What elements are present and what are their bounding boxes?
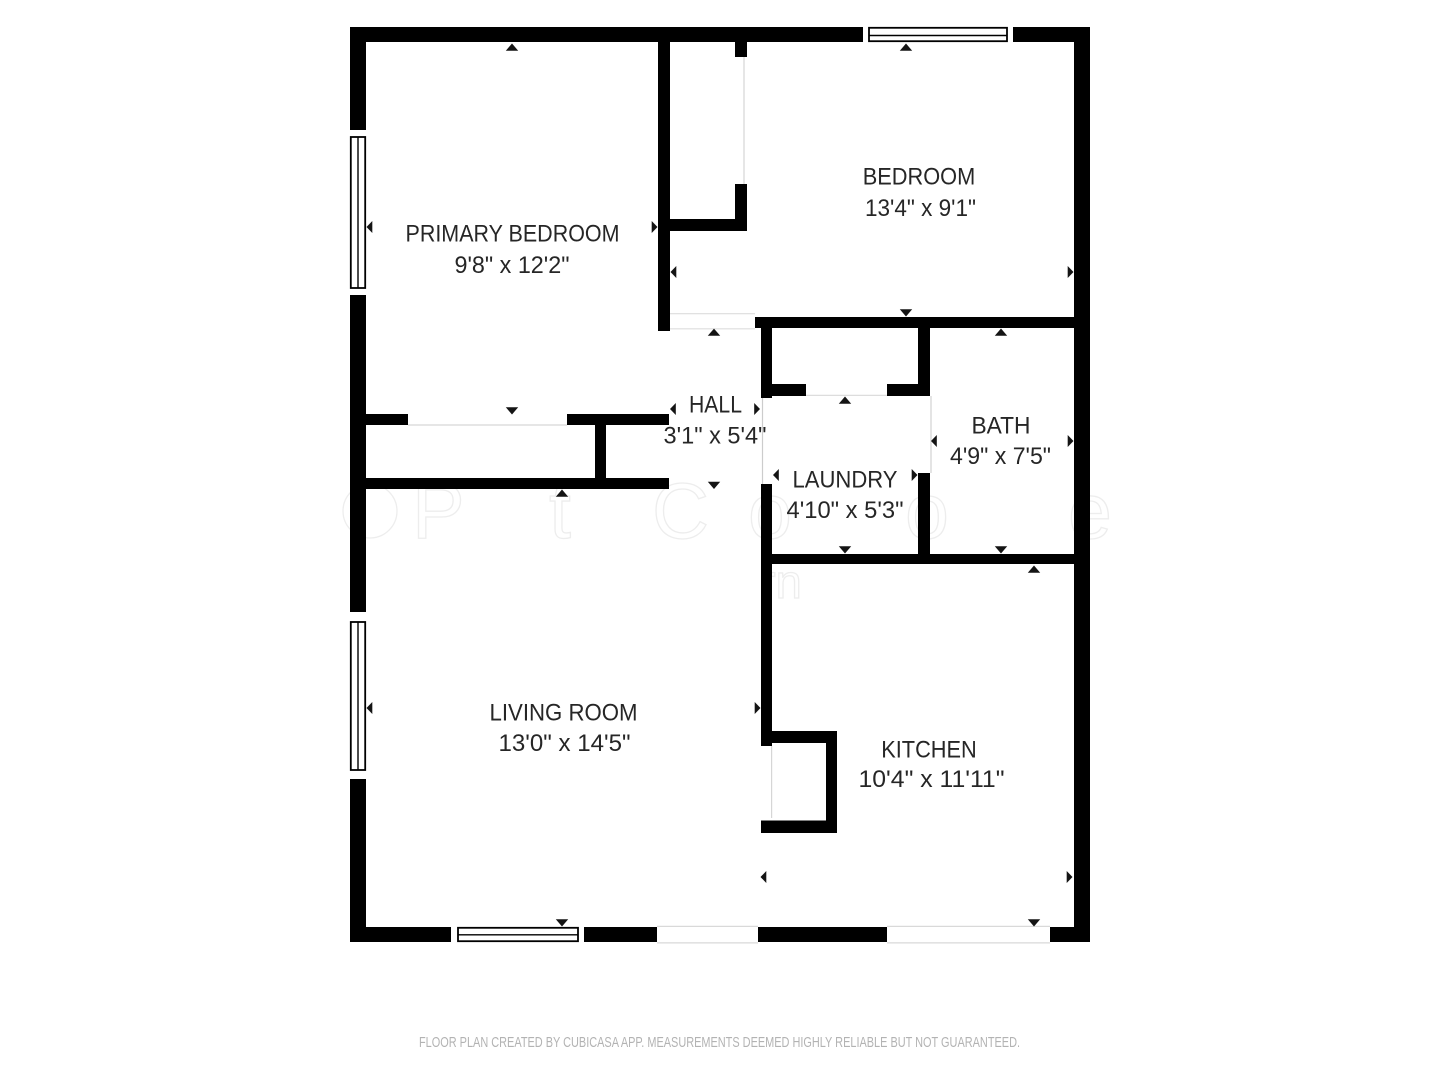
svg-text:13'0" x 14'5": 13'0" x 14'5" bbox=[499, 731, 631, 757]
svg-text:9'8" x 12'2": 9'8" x 12'2" bbox=[455, 253, 570, 279]
svg-text:HALL: HALL bbox=[689, 393, 742, 419]
svg-text:13'4" x 9'1": 13'4" x 9'1" bbox=[865, 196, 976, 222]
svg-text:3'1" x 5'4": 3'1" x 5'4" bbox=[664, 424, 767, 450]
svg-text:FLOOR PLAN CREATED BY CUBICASA: FLOOR PLAN CREATED BY CUBICASA APP. MEAS… bbox=[419, 1035, 1020, 1051]
svg-text:BATH: BATH bbox=[972, 414, 1031, 440]
svg-text:10'4" x 11'11": 10'4" x 11'11" bbox=[859, 767, 1005, 793]
svg-text:LIVING ROOM: LIVING ROOM bbox=[490, 701, 638, 727]
svg-text:KITCHEN: KITCHEN bbox=[881, 738, 977, 764]
svg-text:LAUNDRY: LAUNDRY bbox=[793, 468, 898, 494]
svg-text:4'10" x 5'3": 4'10" x 5'3" bbox=[787, 498, 904, 524]
svg-text:BEDROOM: BEDROOM bbox=[863, 165, 976, 191]
svg-text:PRIMARY BEDROOM: PRIMARY BEDROOM bbox=[406, 222, 620, 248]
svg-text:4'9" x 7'5": 4'9" x 7'5" bbox=[950, 444, 1051, 470]
